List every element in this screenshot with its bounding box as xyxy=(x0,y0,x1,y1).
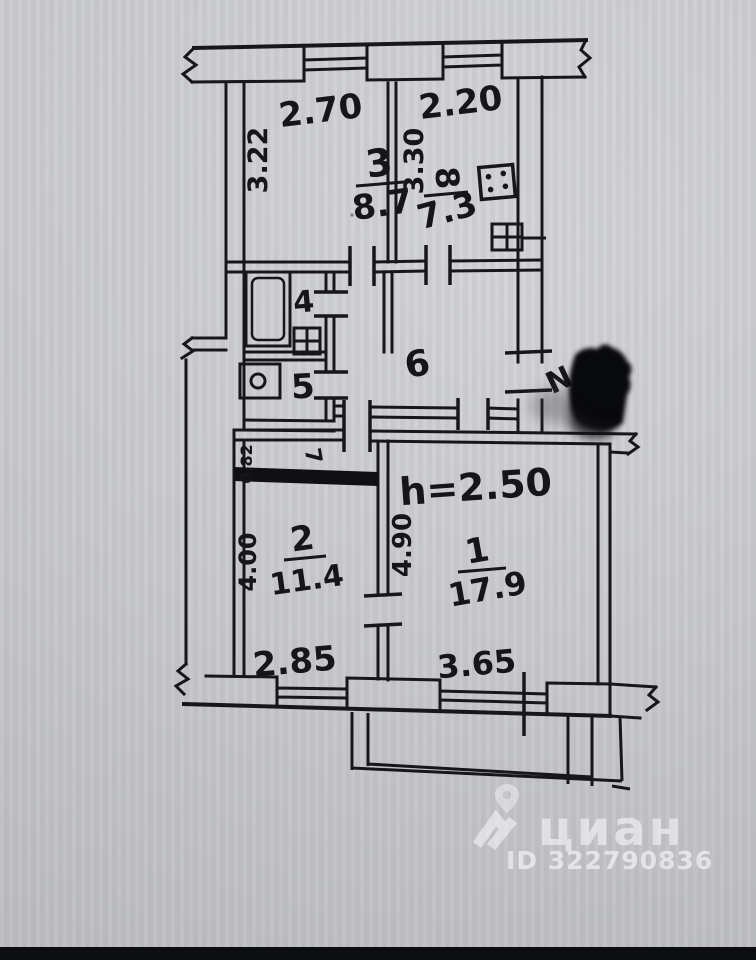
closet-number-label: 7 xyxy=(299,446,326,465)
wall-top-right-break xyxy=(579,40,590,77)
window-kitchen xyxy=(443,41,502,79)
wc-number-label: 5 xyxy=(290,366,316,407)
wall-mid-upper xyxy=(226,260,542,272)
dim-side-room1: 4.90 xyxy=(388,513,418,577)
room3-number-label: 3 xyxy=(363,139,395,186)
toilet-icon xyxy=(240,364,280,398)
window-room3 xyxy=(304,44,367,81)
dim-side-room2: 4.00 xyxy=(234,532,262,591)
dim-bottom-room2: 2.85 xyxy=(251,638,338,685)
wall-top-inner xyxy=(192,77,585,82)
floor-plan-drawing: 2.70 2.20 3.22 3.30 3 8.7 8 7.3 4 5 6 7 … xyxy=(0,0,756,960)
room2-number-label: 2 xyxy=(288,518,317,561)
balcony-outline xyxy=(352,712,630,789)
door-room1 xyxy=(458,398,488,430)
door-room2 xyxy=(344,400,370,452)
dim-top-room3: 2.70 xyxy=(277,86,365,136)
watermark-group: циан ID 322790836 xyxy=(477,784,713,875)
photo-bottom-black-strip xyxy=(0,947,756,960)
bathtub-icon xyxy=(246,272,290,346)
wall-left-outer-lower xyxy=(176,360,188,694)
wall-hall-stub xyxy=(384,272,392,352)
bathroom-number-label: 4 xyxy=(292,284,316,321)
wall-top-outer xyxy=(194,40,586,48)
dim-top-kitchen: 2.20 xyxy=(417,78,505,128)
wall-room1-right xyxy=(598,444,610,716)
hall-number-label: 6 xyxy=(401,342,433,387)
door-bathroom xyxy=(314,292,348,316)
stove-icon xyxy=(479,165,516,200)
room2-area-label: 11.4 xyxy=(268,558,346,603)
dim-side-room3: 3.22 xyxy=(243,127,274,194)
room2-fraction-line xyxy=(284,556,326,560)
ceiling-height-label: h=2.50 xyxy=(398,460,553,515)
wall-left-jog xyxy=(182,338,226,358)
dim-bottom-room1: 3.65 xyxy=(436,642,518,687)
wall-rooms-top xyxy=(234,430,638,454)
labels-layer: 2.70 2.20 3.22 3.30 3 8.7 8 7.3 4 5 6 7 … xyxy=(234,78,578,686)
wall-hall-bottom xyxy=(334,406,518,419)
wall-top-left-break xyxy=(183,48,196,82)
map-pin-icon xyxy=(495,784,519,813)
door-wc xyxy=(314,372,348,398)
redaction-blob xyxy=(530,344,632,438)
bath-sink-icon xyxy=(294,328,320,354)
closet-depth-label: 0.82 xyxy=(237,444,256,483)
wall-room1-room2 xyxy=(378,441,388,680)
room3-area-label: 8.7 xyxy=(350,181,415,229)
cian-logo-icon xyxy=(477,818,513,847)
floor-plan-photo: 2.70 2.20 3.22 3.30 3 8.7 8 7.3 4 5 6 7 … xyxy=(0,0,756,960)
listing-id-text: ID 322790836 xyxy=(506,846,713,875)
door-room1-room2 xyxy=(364,594,402,626)
door-kitchen xyxy=(426,245,450,285)
door-room3 xyxy=(350,246,374,286)
room1-number-label: 1 xyxy=(462,529,492,573)
wall-bottom-right-stub xyxy=(610,684,658,718)
